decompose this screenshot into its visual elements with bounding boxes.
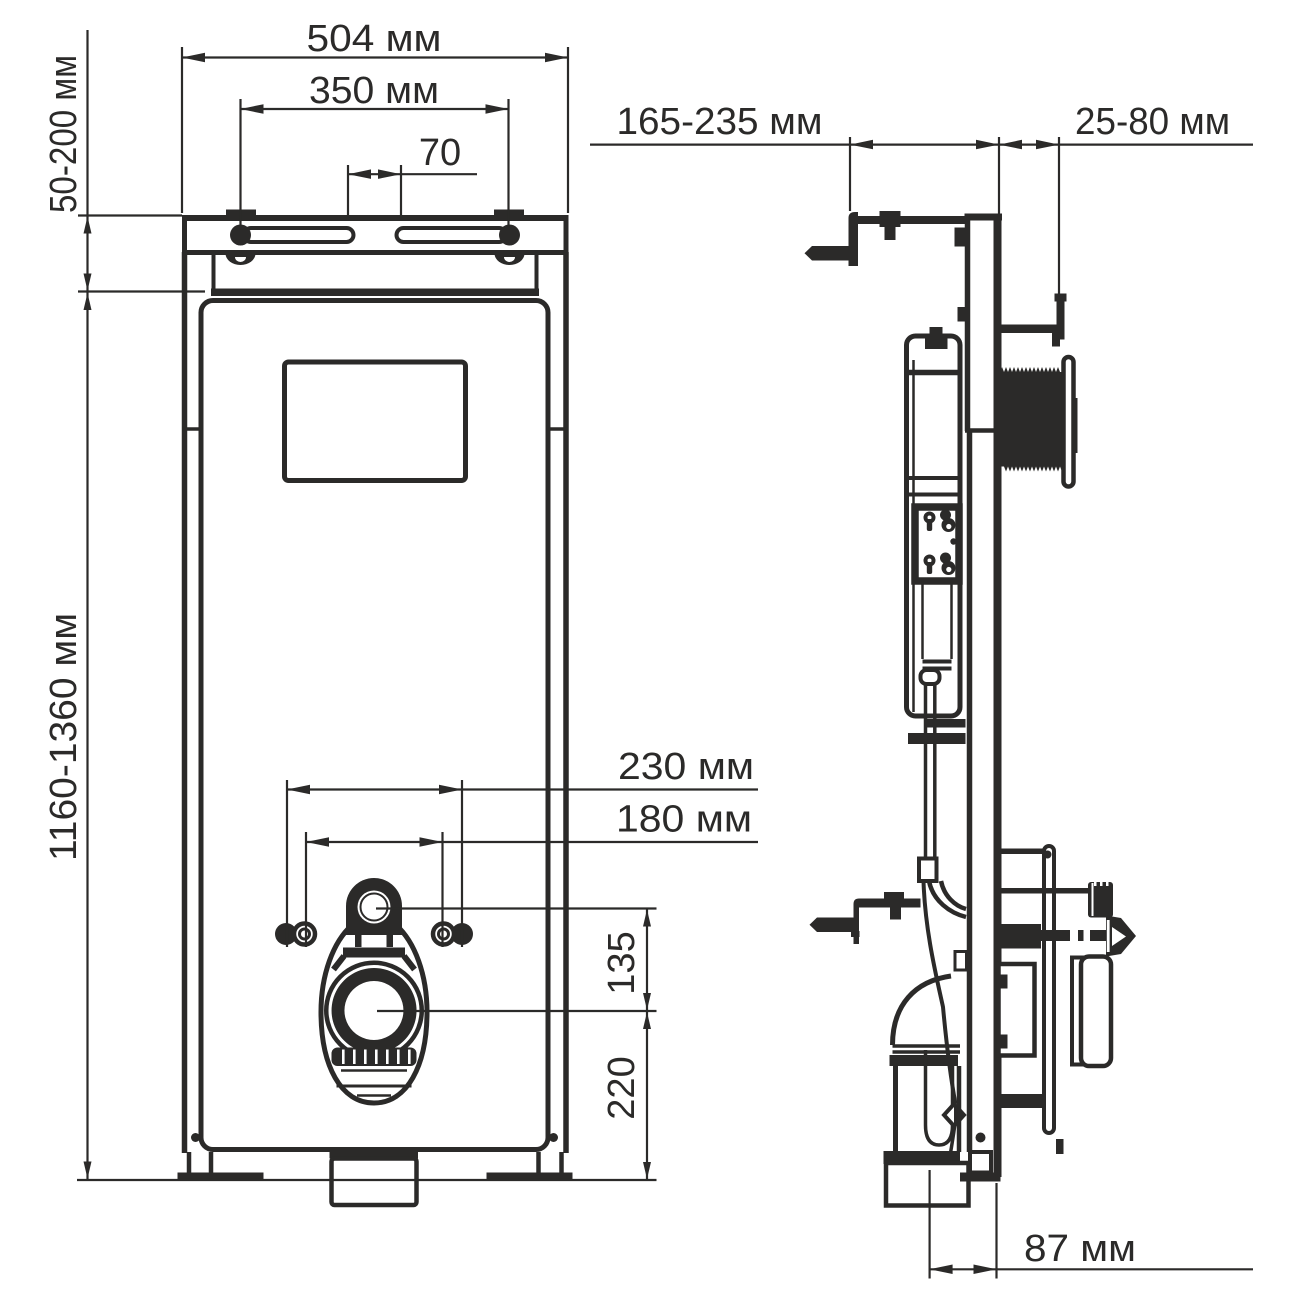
svg-text:180 мм: 180 мм bbox=[616, 799, 752, 841]
svg-text:70: 70 bbox=[419, 132, 461, 174]
svg-text:1160-1360 мм: 1160-1360 мм bbox=[43, 613, 85, 861]
svg-text:220: 220 bbox=[601, 1056, 643, 1119]
svg-text:87 мм: 87 мм bbox=[1024, 1228, 1136, 1270]
svg-text:504 мм: 504 мм bbox=[307, 18, 442, 60]
svg-text:230 мм: 230 мм bbox=[618, 746, 754, 788]
svg-text:50-200 мм: 50-200 мм bbox=[43, 55, 85, 213]
svg-text:350 мм: 350 мм bbox=[309, 70, 439, 112]
svg-text:165-235 мм: 165-235 мм bbox=[617, 101, 823, 143]
svg-text:25-80 мм: 25-80 мм bbox=[1075, 101, 1230, 143]
svg-text:135: 135 bbox=[601, 931, 643, 994]
